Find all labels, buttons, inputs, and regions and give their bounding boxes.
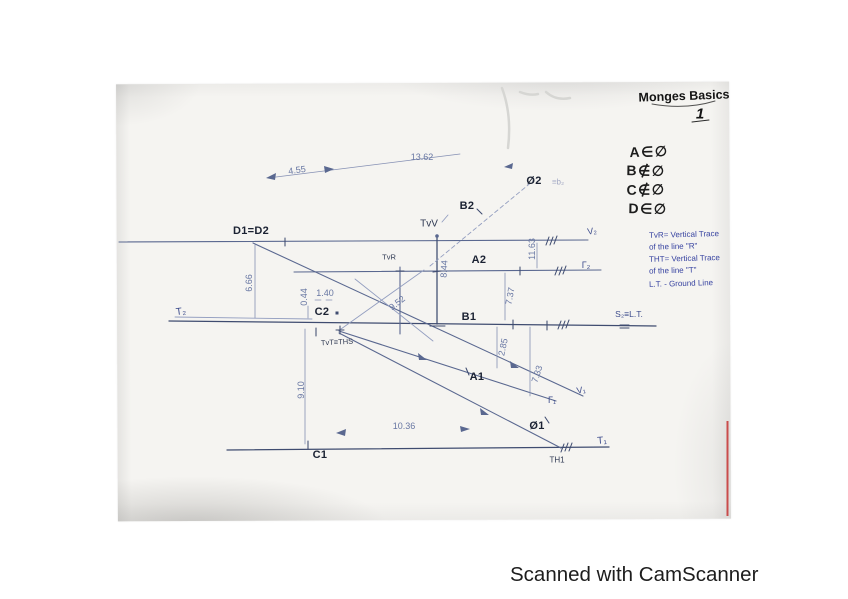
dim-13-62: 13.62 [411,152,434,162]
legend-line-4: of the line "T" [649,264,697,276]
membership-a: A∈∅ [629,143,669,161]
legend-line-5: L.T. - Ground Line [649,277,713,290]
label-c2: C2 [315,306,330,318]
membership-b: B∉∅ [626,162,665,180]
legend-line-3: THT= Vertical Trace [649,252,720,265]
label-v2: V₂ [587,225,598,236]
label-phi2-suffix: ≡b₂ [552,178,564,187]
label-s2-lt: S₂≡L.T. [615,309,643,319]
label-gamma2: Γ₂ [582,260,590,270]
page-number: 1 [696,106,704,123]
label-phi1: Ø1 [529,420,544,432]
membership-c: C∉∅ [626,181,665,199]
legend-line-2: of the line "R" [649,240,698,252]
label-phi2: Ø2 [526,175,541,187]
camscanner-watermark: Scanned with CamScanner [510,563,770,587]
label-d1d2: D1=D2 [233,225,269,237]
label-b2: B2 [460,200,475,212]
label-a2: A2 [472,254,487,266]
label-th1: TH1 [549,456,564,465]
dim-10-36: 10.36 [393,421,416,431]
label-v1: V₁ [576,384,587,395]
membership-d: D∈∅ [628,200,667,218]
dim-0-44: 0.44 [299,288,309,306]
dim-8-44: 8.44 [439,260,450,278]
label-b1: B1 [462,311,477,323]
label-a1: A1 [470,371,485,383]
label-t1: T₁ [597,435,607,447]
dim-9-10: 9.10 [296,381,306,399]
dim-1-40: 1.40 [316,288,334,298]
label-tvv: TvV [420,219,438,230]
label-tvr: TvR [382,253,396,262]
dim-11-63: 11.63 [527,238,537,260]
dim-6-66: 6.66 [244,274,254,292]
label-c1: C1 [313,449,328,461]
label-t2: T₂ [175,306,186,318]
label-gamma1: Γ₁ [548,395,556,405]
legend-line-1: TvR= Vertical Trace [649,228,719,241]
label-tvt-ths: TvT≡THS [321,337,354,348]
